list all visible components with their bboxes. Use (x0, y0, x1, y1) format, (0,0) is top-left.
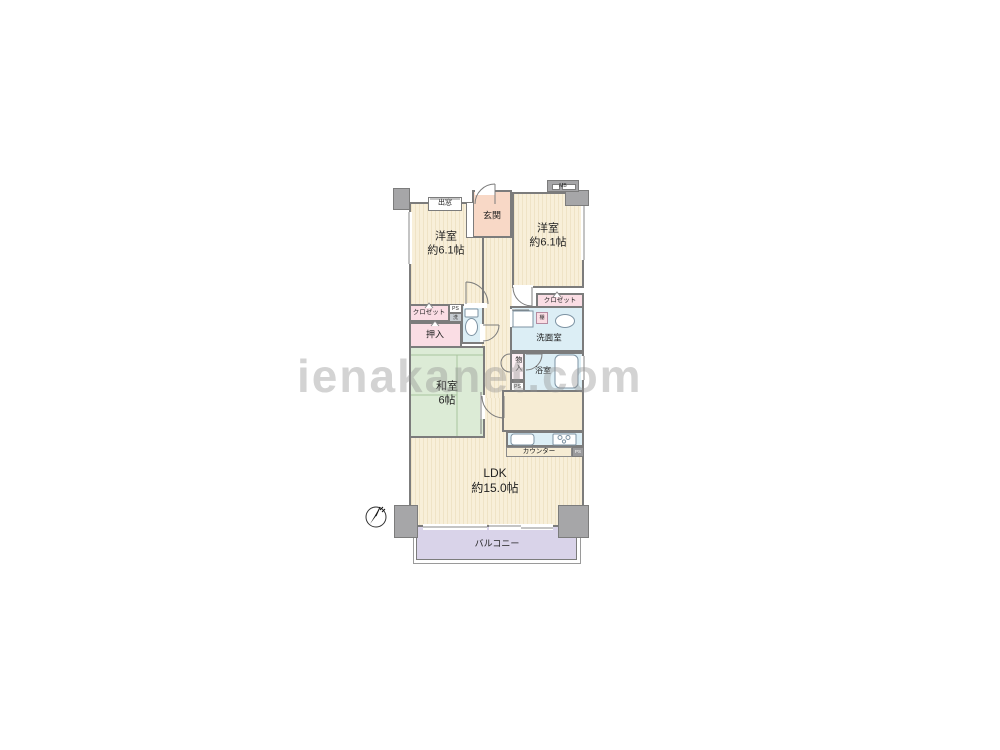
balcony-sliding-door (489, 524, 553, 530)
closet-b-label: クロゼット (544, 297, 577, 305)
shelf-label: 棚 (539, 315, 544, 321)
floor-plan-page: 出窓 玄関 洋室 約6.1帖 洋室 約6.1帖 クロゼット PS 洗 押入 和室… (0, 0, 1000, 750)
balcony-label: バルコニー (475, 538, 520, 549)
pipe-space-1-label: PS (452, 305, 459, 311)
compass-icon (363, 503, 391, 531)
entrance-label: 玄関 (483, 210, 501, 221)
room-b-door-gap (513, 285, 533, 290)
pipe-space-3-label: PS (575, 449, 581, 455)
toilet-door-gap (480, 324, 485, 342)
burner-icon (562, 440, 565, 443)
washroom-label: 洗面室 (536, 333, 562, 344)
room-a-door-gap (464, 303, 487, 308)
room-western-b-label: 洋室 約6.1帖 (529, 222, 566, 250)
burner-icon (566, 436, 570, 440)
room-western-a-label: 洋室 約6.1帖 (427, 230, 464, 258)
washing-machine-icon (513, 311, 533, 327)
meter-box-label: MB (559, 183, 567, 189)
burner-icon (558, 436, 562, 440)
room-ldk-label: LDK 約15.0帖 (471, 466, 518, 496)
toilet-bowl-icon (466, 319, 478, 336)
kitchen-sink-icon (511, 434, 534, 445)
toilet-tank-icon (465, 309, 478, 317)
closet-a-label: クロゼット (413, 309, 446, 317)
oshiire-label: 押入 (426, 329, 444, 340)
laundry-label: 洗 (453, 314, 458, 320)
washbasin-icon (556, 315, 575, 328)
room-a-door-arc (466, 282, 488, 304)
toilet-door-arc (483, 325, 499, 341)
counter-label: カウンター (523, 448, 556, 456)
bay-window-label: 出窓 (438, 200, 452, 209)
watermark-text: ienakanet.com (297, 349, 643, 403)
